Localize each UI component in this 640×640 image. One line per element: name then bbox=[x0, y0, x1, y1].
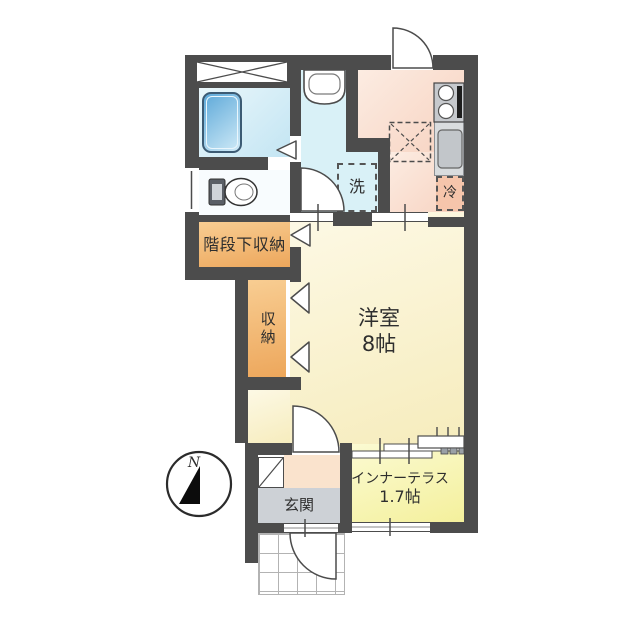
entrance-label: 玄関 bbox=[258, 497, 340, 514]
closet-folding-door-icon bbox=[291, 283, 309, 372]
inner-terrace-label: インナーテラス 1.7帖 bbox=[350, 471, 450, 505]
western-room-door-arc bbox=[293, 406, 339, 452]
shoe-cabinet-diagonal bbox=[259, 458, 283, 487]
stove-icon bbox=[434, 83, 464, 122]
compass-north-label: N bbox=[186, 455, 202, 471]
under-stairs-storage-label: 階段下収納 bbox=[199, 236, 290, 254]
western-room-name: 洋室 bbox=[329, 305, 429, 331]
washbasin-icon bbox=[304, 70, 345, 104]
inner-terrace-size: 1.7帖 bbox=[350, 488, 450, 505]
western-room-label: 洋室 8帖 bbox=[329, 305, 429, 357]
sink-icon bbox=[438, 130, 462, 168]
under-stairs-storage-door-icon bbox=[291, 224, 310, 246]
toilet-icon bbox=[209, 179, 257, 206]
western-room-size: 8帖 bbox=[329, 331, 429, 357]
inner-terrace-name: インナーテラス bbox=[350, 471, 450, 488]
floorplan-canvas: 洗 冷 bbox=[0, 0, 640, 640]
crossed-window-icon bbox=[197, 62, 287, 82]
bathroom-door-icon bbox=[277, 141, 296, 159]
entrance-door-arc bbox=[290, 533, 336, 579]
washroom-door-arc bbox=[301, 168, 344, 211]
closet-label: 収納 bbox=[248, 297, 286, 361]
fixtures-overlay bbox=[0, 0, 640, 640]
kitchen-back-door-arc bbox=[393, 28, 433, 68]
kitchen-dashed-space bbox=[390, 123, 431, 162]
